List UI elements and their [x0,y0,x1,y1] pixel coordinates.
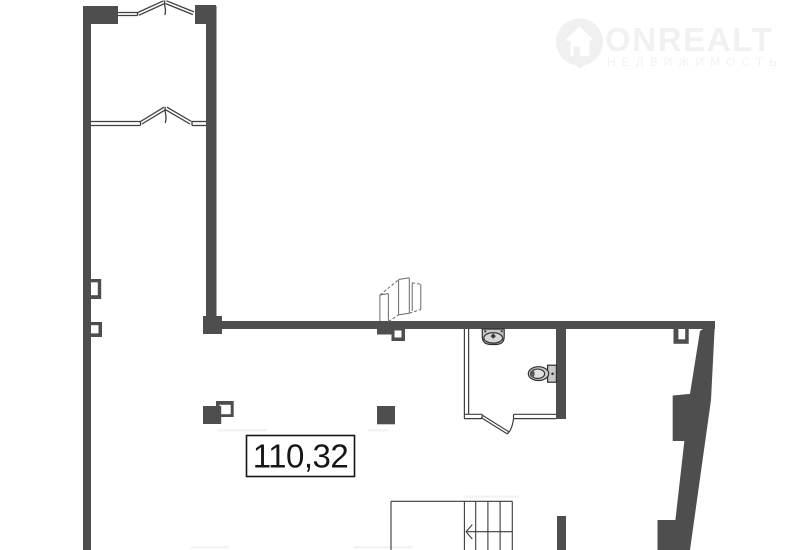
svg-text:110,32: 110,32 [253,438,348,475]
svg-text:ONREALT: ONREALT [605,21,773,58]
svg-text:НЕДВИЖИМОСТЬ: НЕДВИЖИМОСТЬ [607,55,783,69]
